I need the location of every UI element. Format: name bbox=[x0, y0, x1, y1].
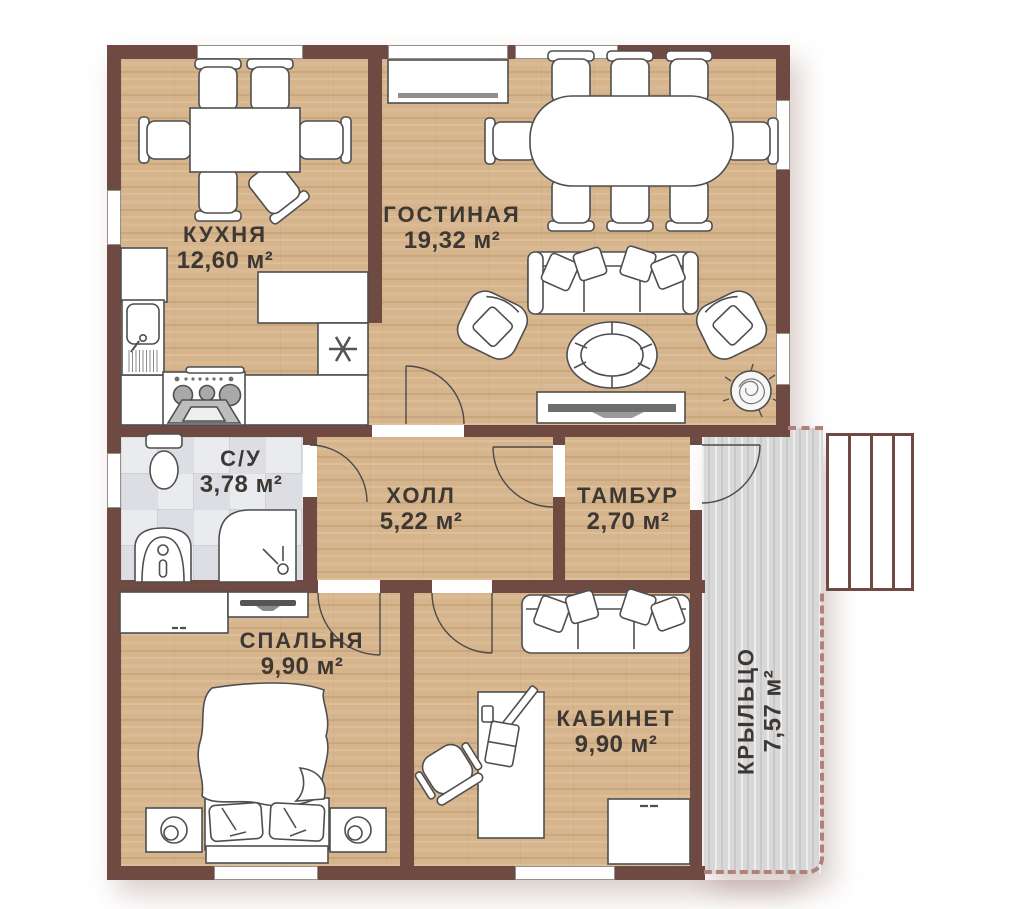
window-bedroom-bottom bbox=[214, 866, 318, 880]
room-area: 3,78 м² bbox=[200, 471, 283, 499]
wall-porch-b bbox=[690, 510, 702, 580]
room-name: С/У bbox=[200, 446, 283, 471]
label-vestibule: ТАМБУР 2,70 м² bbox=[577, 483, 679, 536]
wall-porch-a bbox=[690, 437, 702, 445]
window-kitchen-top bbox=[197, 45, 303, 59]
wall-lower-a bbox=[107, 580, 318, 593]
window-office-bottom bbox=[515, 866, 615, 880]
wall-lower-c bbox=[492, 580, 705, 593]
room-name: СПАЛЬНЯ bbox=[240, 628, 365, 653]
wall-mid-right bbox=[464, 425, 790, 437]
room-area: 9,90 м² bbox=[557, 731, 676, 759]
room-name: ХОЛЛ bbox=[380, 483, 463, 508]
room-area: 7,57 м² bbox=[760, 647, 789, 775]
porch-dashed-edge-top bbox=[788, 426, 823, 430]
stair-step-divider bbox=[892, 433, 895, 591]
window-living-top-left bbox=[388, 45, 508, 59]
label-living-room: ГОСТИНАЯ 19,32 м² bbox=[383, 202, 520, 255]
label-hall: ХОЛЛ 5,22 м² bbox=[380, 483, 463, 536]
window-living-top-right bbox=[515, 45, 618, 59]
room-area: 12,60 м² bbox=[177, 247, 273, 275]
stair-step-divider bbox=[848, 433, 851, 591]
wall-vestibule-left-b bbox=[553, 497, 565, 580]
wall-bottom bbox=[107, 866, 705, 880]
room-area: 5,22 м² bbox=[380, 508, 463, 536]
room-name: ГОСТИНАЯ bbox=[383, 202, 520, 227]
label-office: КАБИНЕТ 9,90 м² bbox=[557, 706, 676, 759]
room-name: КРЫЛЬЦО bbox=[733, 647, 759, 775]
wall-mid-left bbox=[107, 425, 372, 437]
room-area: 19,32 м² bbox=[383, 227, 520, 255]
wall-kitchen-living bbox=[368, 59, 382, 323]
room-name: КАБИНЕТ bbox=[557, 706, 676, 731]
window-bathroom-left bbox=[107, 453, 121, 508]
kitchen-passage-floor bbox=[368, 323, 382, 425]
wall-bath-right-a bbox=[303, 437, 317, 445]
room-area: 9,90 м² bbox=[240, 653, 365, 681]
room-name: КУХНЯ bbox=[177, 222, 273, 247]
window-living-right-lower bbox=[776, 333, 790, 385]
window-living-right-upper bbox=[776, 100, 790, 170]
room-area: 2,70 м² bbox=[577, 508, 679, 536]
wall-bedroom-office bbox=[400, 593, 414, 866]
wall-lower-b bbox=[380, 580, 432, 593]
window-kitchen-left bbox=[107, 190, 121, 245]
room-name: ТАМБУР bbox=[577, 483, 679, 508]
wall-vestibule-left-a bbox=[553, 437, 565, 445]
floor-plan: КУХНЯ 12,60 м² ГОСТИНАЯ 19,32 м² С/У 3,7… bbox=[0, 0, 1024, 909]
stair-step-divider bbox=[870, 433, 873, 591]
label-kitchen: КУХНЯ 12,60 м² bbox=[177, 222, 273, 275]
label-bathroom: С/У 3,78 м² bbox=[200, 446, 283, 499]
wall-bath-right-b bbox=[303, 497, 317, 580]
wall-porch-c bbox=[690, 593, 702, 866]
label-bedroom: СПАЛЬНЯ 9,90 м² bbox=[240, 628, 365, 681]
